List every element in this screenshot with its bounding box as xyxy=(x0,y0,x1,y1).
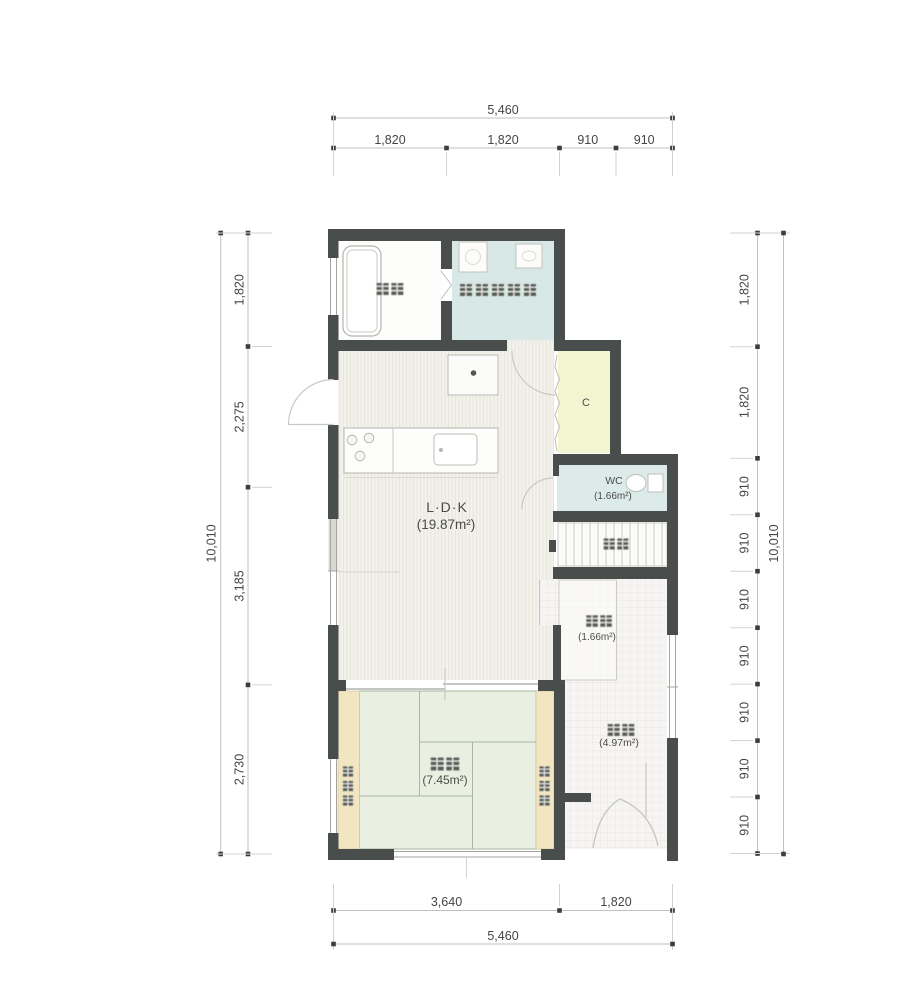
svg-text:5,460: 5,460 xyxy=(487,103,518,117)
svg-text:1,820: 1,820 xyxy=(487,133,518,147)
svg-text:WC: WC xyxy=(605,475,623,487)
svg-text:1,820: 1,820 xyxy=(738,274,752,305)
svg-text:(1.66m²): (1.66m²) xyxy=(594,491,632,502)
svg-text:910: 910 xyxy=(634,133,655,147)
svg-text:910: 910 xyxy=(738,758,752,779)
svg-text:3,185: 3,185 xyxy=(233,570,247,601)
svg-text:910: 910 xyxy=(738,702,752,723)
svg-text:910: 910 xyxy=(738,476,752,497)
svg-text:2,730: 2,730 xyxy=(233,754,247,785)
svg-text:1,820: 1,820 xyxy=(233,274,247,305)
svg-text:3,640: 3,640 xyxy=(431,895,462,909)
svg-text:910: 910 xyxy=(577,133,598,147)
svg-text:1,820: 1,820 xyxy=(738,387,752,418)
svg-text:(4.97m²): (4.97m²) xyxy=(599,737,639,749)
svg-text:1,820: 1,820 xyxy=(600,895,631,909)
svg-text:910: 910 xyxy=(738,815,752,836)
svg-text:10,010: 10,010 xyxy=(205,524,219,562)
svg-text:910: 910 xyxy=(738,589,752,610)
svg-text:(19.87m²): (19.87m²) xyxy=(417,517,476,532)
svg-text:5,460: 5,460 xyxy=(487,929,518,943)
svg-text:910: 910 xyxy=(738,533,752,554)
svg-text:910: 910 xyxy=(738,645,752,666)
svg-text:(1.66m²): (1.66m²) xyxy=(578,632,616,643)
svg-text:C: C xyxy=(582,397,590,409)
svg-text:1,820: 1,820 xyxy=(374,133,405,147)
svg-text:L·D·K: L·D·K xyxy=(426,499,468,515)
svg-text:(7.45m²): (7.45m²) xyxy=(422,773,467,787)
svg-text:10,010: 10,010 xyxy=(767,524,781,562)
svg-text:2,275: 2,275 xyxy=(233,401,247,432)
